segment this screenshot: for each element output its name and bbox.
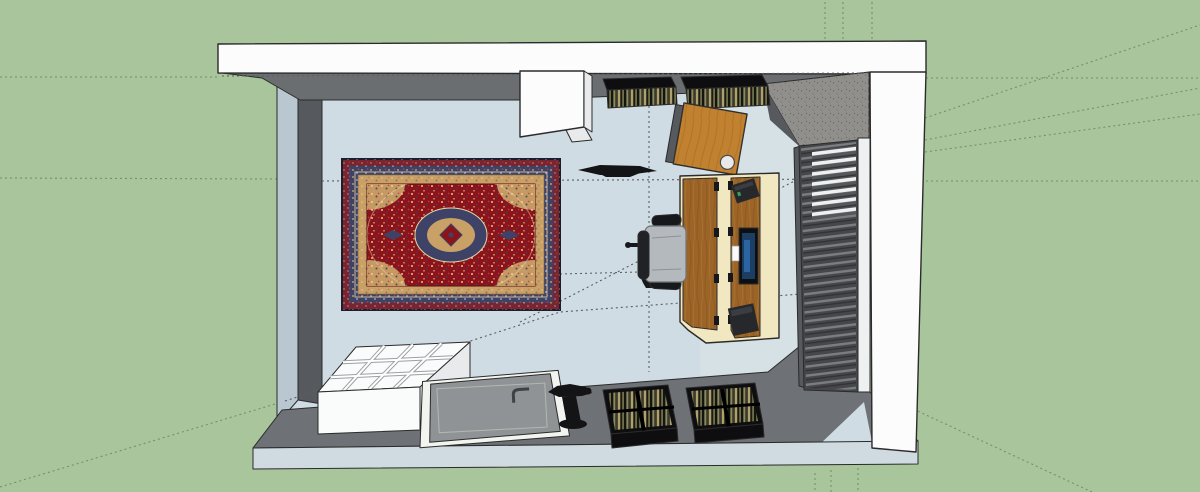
persian-rug[interactable]: Persian rug <box>329 158 573 312</box>
monitor[interactable]: Monitor <box>739 228 758 284</box>
sticky-note[interactable]: Sticky note <box>732 246 739 261</box>
door-panel[interactable]: Door panel laid flat <box>416 370 569 448</box>
viewport-3d[interactable]: Ground plane Construction guide lines Ro… <box>0 0 1200 492</box>
wall-left[interactable]: Left wall <box>277 84 322 424</box>
desk[interactable]: Wooden desk Monitor Sticky note Studio s… <box>680 173 779 343</box>
record-shelf-2[interactable]: Record shelf 2 <box>681 75 770 109</box>
speaker-bottom[interactable]: Studio speaker (bottom) <box>728 304 758 336</box>
record-shelf-1[interactable]: Record shelf 1 <box>603 77 677 108</box>
wall-cabinet[interactable]: Wall cabinet <box>520 71 592 142</box>
side-table[interactable]: Leaning table top with cable grommet <box>665 102 747 176</box>
window-blinds[interactable]: Window blinds <box>794 138 870 392</box>
record-crate-2[interactable]: Record crate 2 <box>686 383 764 443</box>
blinds-rail <box>858 138 870 392</box>
wall-right[interactable]: Right wall <box>870 72 926 452</box>
record-crate-1[interactable]: Record crate 1 <box>603 385 678 448</box>
